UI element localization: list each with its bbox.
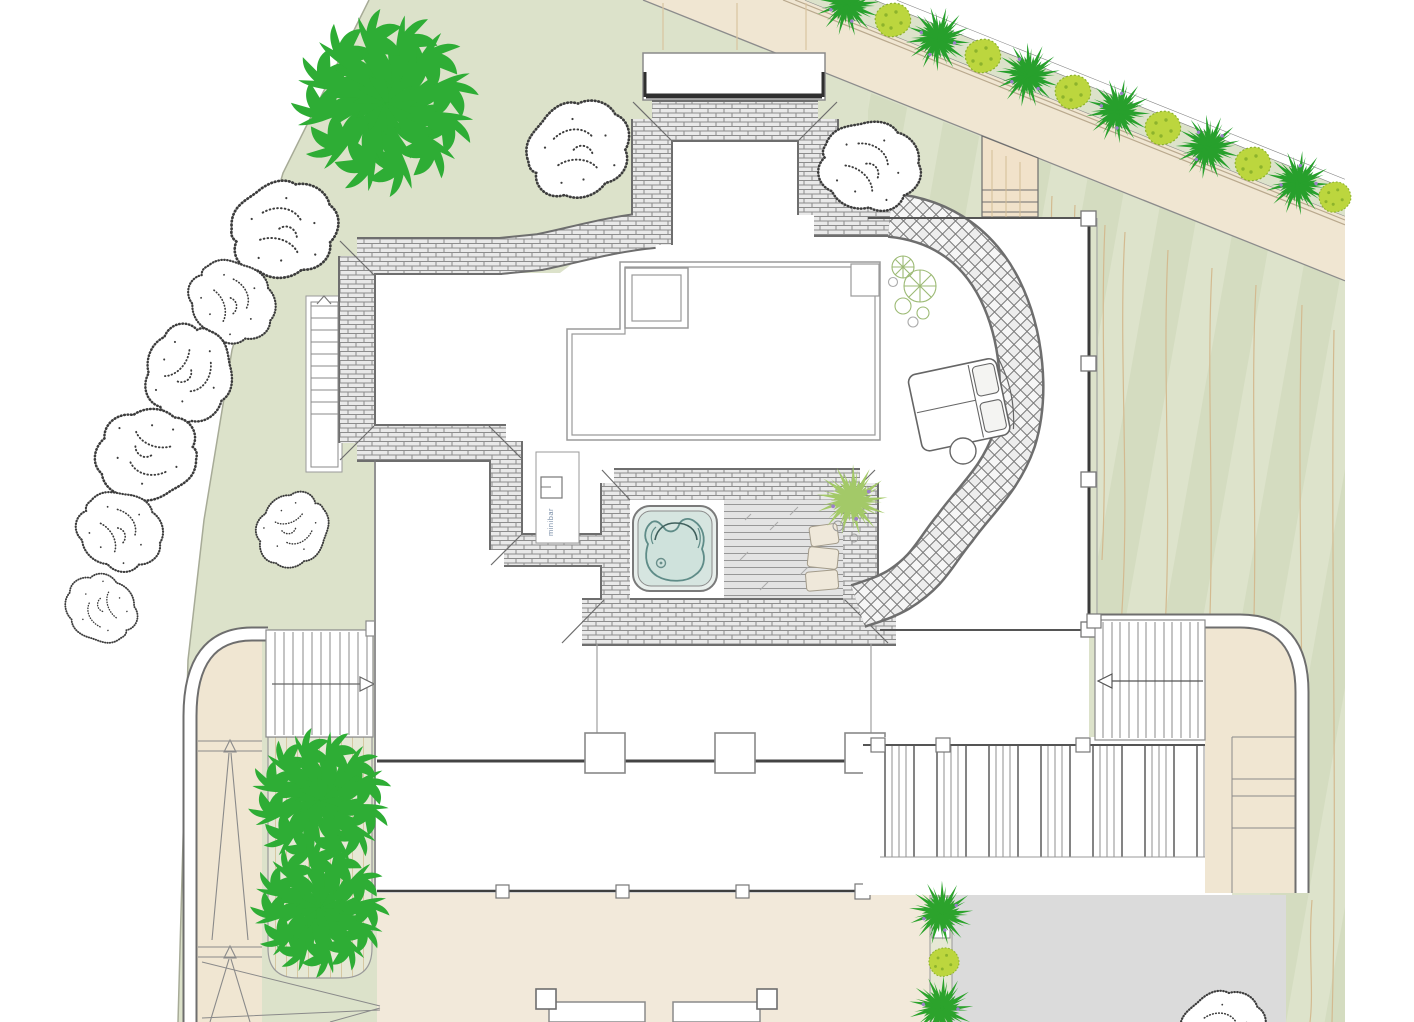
site-plan-canvas: minibar — [0, 0, 1414, 1022]
railing-post — [736, 885, 749, 898]
lower-terrace — [377, 893, 952, 1022]
railing-post — [496, 885, 509, 898]
stair-bottom-right[interactable] — [1087, 614, 1205, 740]
deck-slats — [880, 745, 1232, 857]
column — [715, 733, 755, 773]
hot-tub[interactable] — [633, 506, 717, 591]
railing-post — [936, 738, 950, 752]
side-planter-bed — [1205, 628, 1300, 893]
railing-post — [871, 738, 885, 752]
stair-upper-left[interactable] — [311, 296, 338, 467]
site-plan-drawing: minibar — [0, 0, 1414, 1022]
gate-post — [757, 989, 777, 1009]
gate-post — [536, 989, 556, 1009]
column — [585, 733, 625, 773]
stair-bottom-left[interactable] — [266, 621, 381, 737]
page-margin-right — [1345, 0, 1414, 1022]
minibar[interactable]: minibar — [536, 452, 579, 543]
side-table[interactable] — [950, 438, 976, 464]
minibar-label: minibar — [546, 508, 555, 536]
railing-post — [1076, 738, 1090, 752]
ramp-bed — [196, 632, 262, 1022]
railing-post — [616, 885, 629, 898]
railing-post — [1087, 614, 1101, 628]
deck-cushions[interactable] — [805, 523, 839, 591]
